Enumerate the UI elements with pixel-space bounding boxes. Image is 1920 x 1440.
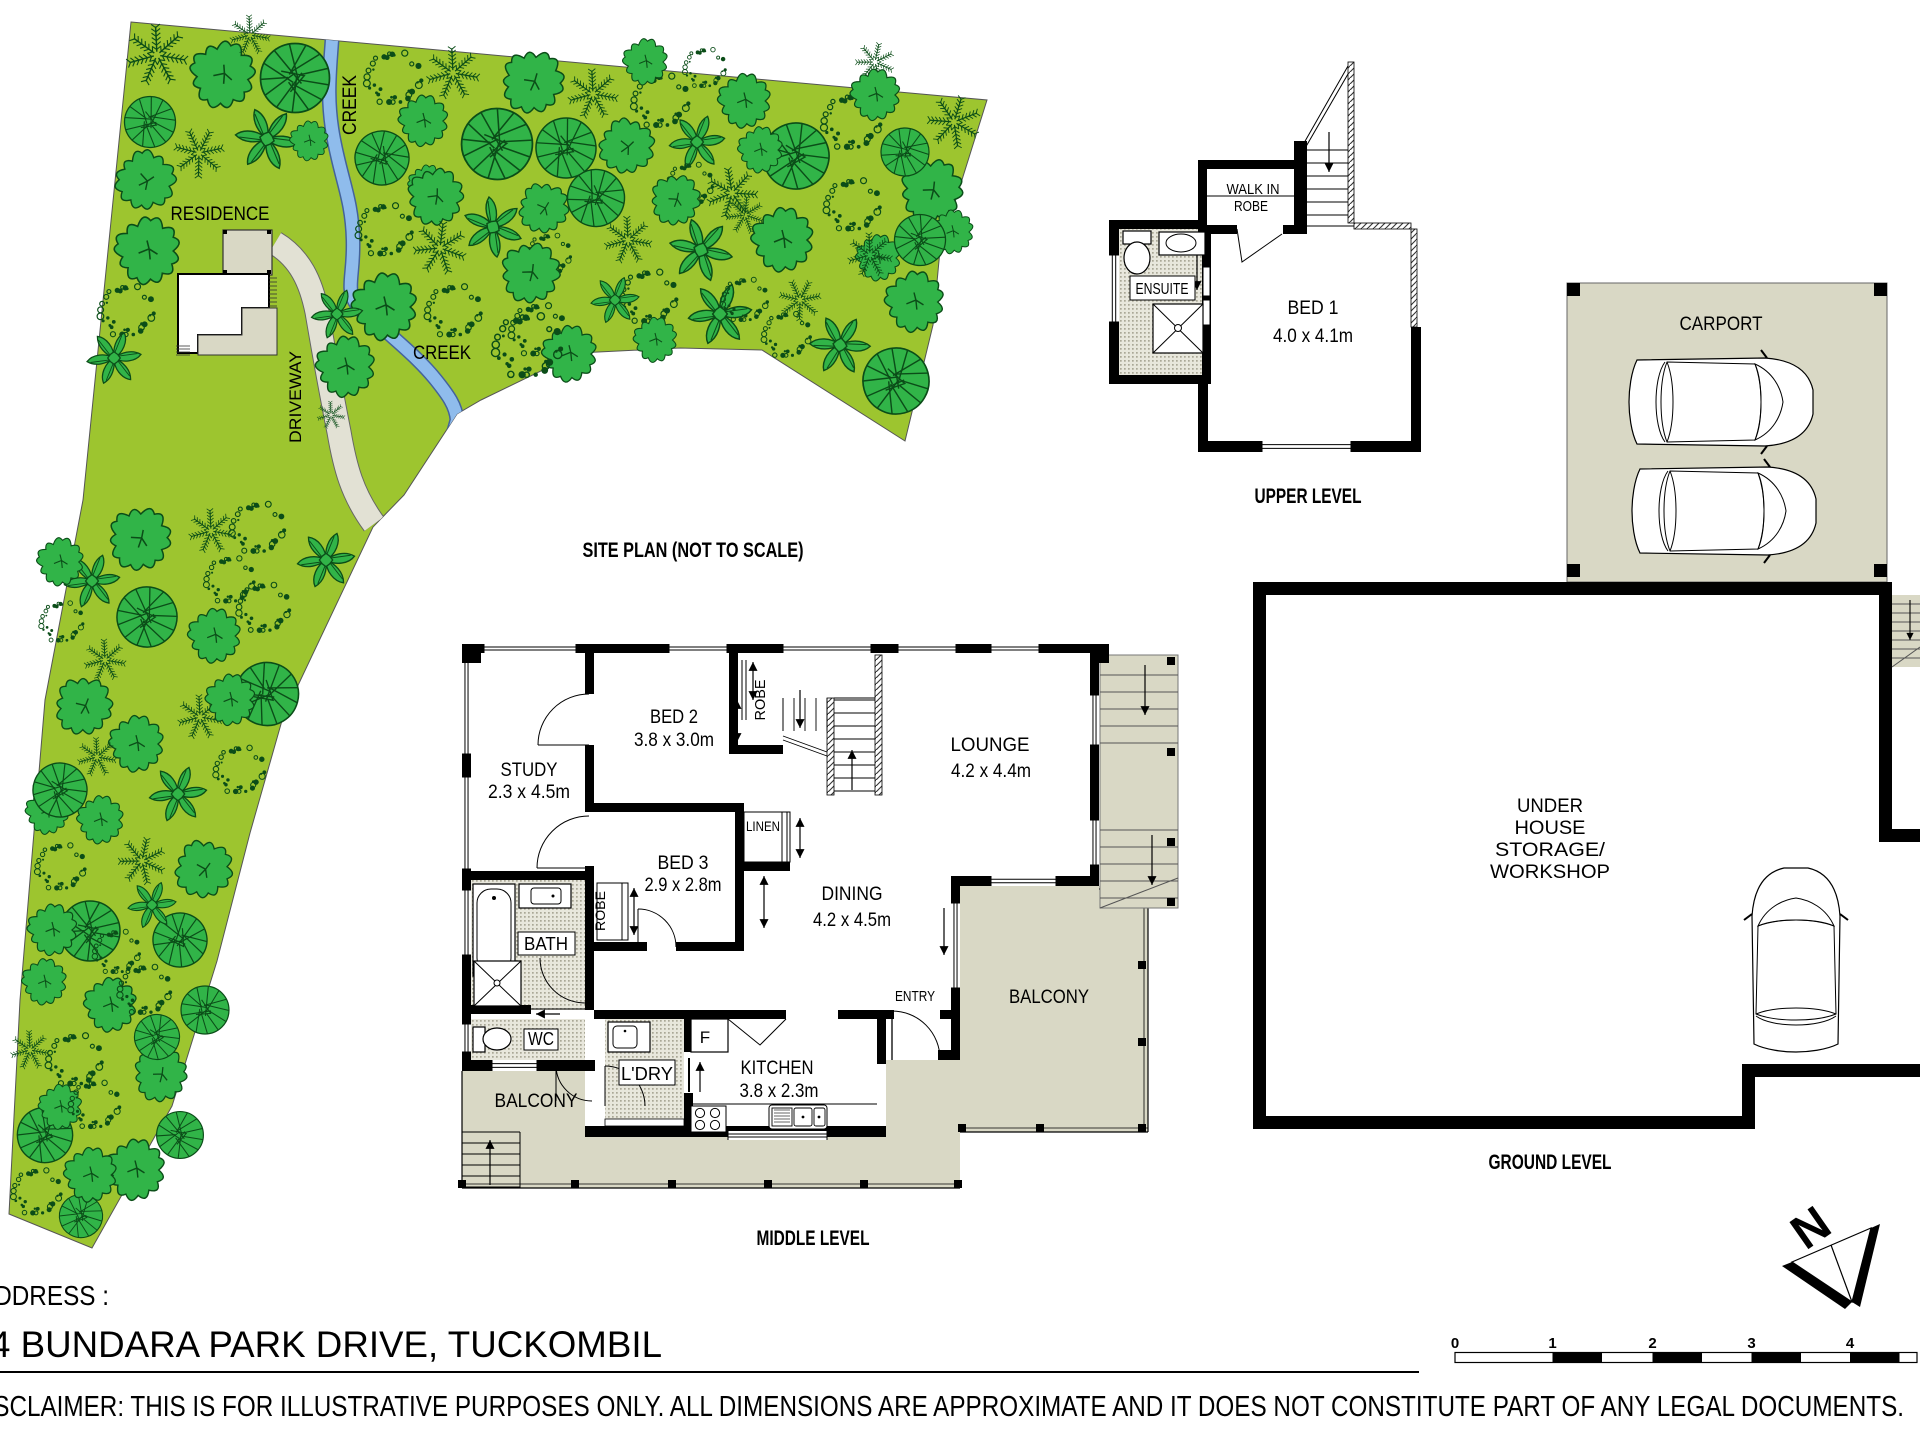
svg-text:UPPER LEVEL: UPPER LEVEL — [1255, 485, 1362, 508]
svg-text:2.3 x 4.5m: 2.3 x 4.5m — [488, 782, 570, 803]
svg-text:DRIVEWAY: DRIVEWAY — [286, 351, 305, 443]
svg-text:STORAGE/: STORAGE/ — [1495, 840, 1606, 861]
svg-text:KITCHEN: KITCHEN — [741, 1058, 814, 1079]
svg-text:LOUNGE: LOUNGE — [951, 735, 1030, 756]
svg-text:CREEK: CREEK — [340, 75, 361, 135]
svg-text:ENTRY: ENTRY — [895, 988, 935, 1005]
svg-text:3.8 x 3.0m: 3.8 x 3.0m — [634, 730, 714, 751]
svg-text:SITE PLAN (NOT TO SCALE): SITE PLAN (NOT TO SCALE) — [583, 539, 804, 562]
svg-text:ENSUITE: ENSUITE — [1136, 281, 1189, 298]
svg-text:ADDRESS :: ADDRESS : — [0, 1280, 109, 1311]
svg-text:L'DRY: L'DRY — [621, 1064, 673, 1084]
svg-text:SHELF: SHELF — [630, 1125, 661, 1136]
svg-text:CARPORT: CARPORT — [1680, 314, 1763, 335]
svg-text:4: 4 — [1846, 1335, 1855, 1352]
svg-text:RESIDENCE: RESIDENCE — [171, 204, 270, 225]
svg-text:DISCLAIMER: THIS IS FOR ILLUST: DISCLAIMER: THIS IS FOR ILLUSTRATIVE PUR… — [0, 1391, 1904, 1423]
svg-text:WORKSHOP: WORKSHOP — [1490, 862, 1610, 883]
svg-text:F: F — [700, 1028, 710, 1047]
svg-text:ROBE: ROBE — [592, 891, 608, 931]
svg-text:BED 1: BED 1 — [1288, 298, 1339, 319]
svg-text:LINEN: LINEN — [746, 818, 780, 834]
svg-text:BED 3: BED 3 — [658, 853, 709, 874]
svg-text:WALK IN: WALK IN — [1227, 181, 1280, 198]
svg-text:GROUND LEVEL: GROUND LEVEL — [1489, 1151, 1612, 1174]
svg-text:BALCONY: BALCONY — [495, 1091, 578, 1112]
svg-text:BED 2: BED 2 — [650, 707, 698, 728]
svg-text:3.8 x 2.3m: 3.8 x 2.3m — [740, 1081, 819, 1102]
svg-text:ROBE: ROBE — [1234, 198, 1268, 215]
svg-text:2.9 x 2.8m: 2.9 x 2.8m — [645, 875, 722, 896]
svg-text:STUDY: STUDY — [501, 760, 558, 781]
svg-text:4.2 x 4.5m: 4.2 x 4.5m — [813, 910, 891, 931]
svg-text:4.0 x 4.1m: 4.0 x 4.1m — [1273, 326, 1353, 347]
svg-text:1: 1 — [1548, 1335, 1556, 1352]
svg-text:0: 0 — [1451, 1335, 1459, 1352]
svg-text:BATH: BATH — [524, 934, 568, 954]
svg-text:ROBE: ROBE — [752, 680, 769, 721]
svg-text:UNDER: UNDER — [1517, 796, 1583, 817]
svg-text:2: 2 — [1648, 1335, 1656, 1352]
svg-text:HOUSE: HOUSE — [1515, 818, 1586, 839]
svg-text:CREEK: CREEK — [413, 343, 471, 364]
svg-text:DINING: DINING — [822, 884, 883, 905]
svg-text:WC: WC — [528, 1029, 554, 1049]
svg-text:4 BUNDARA PARK DRIVE, TUCKOMBI: 4 BUNDARA PARK DRIVE, TUCKOMBIL — [0, 1324, 662, 1365]
svg-text:BALCONY: BALCONY — [1009, 987, 1089, 1008]
svg-text:4.2 x 4.4m: 4.2 x 4.4m — [951, 761, 1031, 782]
svg-text:MIDDLE LEVEL: MIDDLE LEVEL — [757, 1227, 870, 1250]
svg-text:3: 3 — [1747, 1335, 1755, 1352]
